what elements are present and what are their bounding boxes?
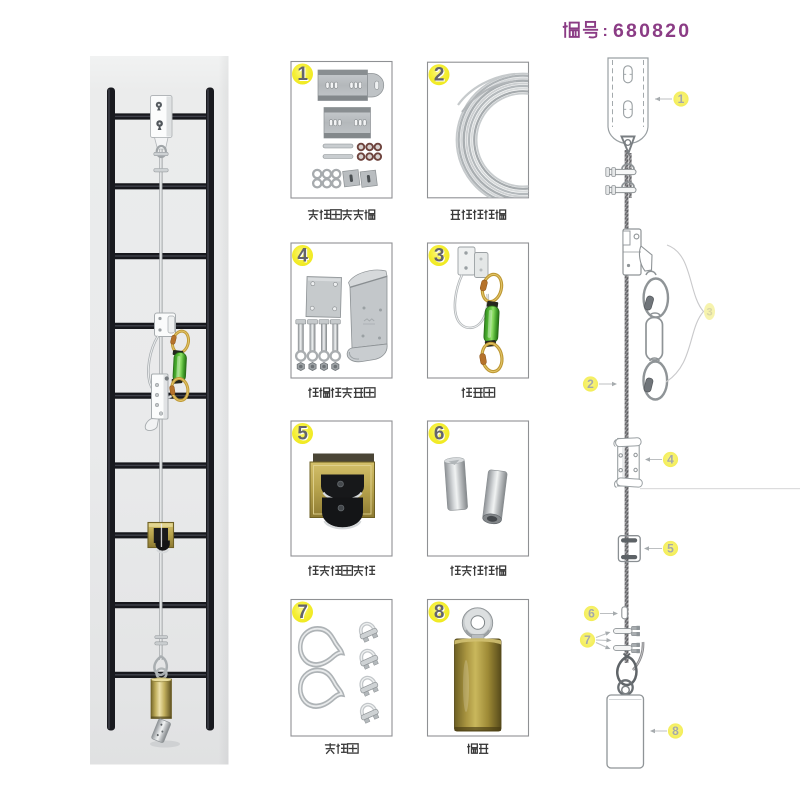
svg-text:3: 3 xyxy=(706,307,712,319)
svg-text:680820: 680820 xyxy=(613,20,691,42)
svg-text:1: 1 xyxy=(678,92,685,106)
svg-text::: : xyxy=(603,23,608,40)
svg-text:8: 8 xyxy=(434,602,445,623)
svg-text:7: 7 xyxy=(584,633,591,647)
svg-text:6: 6 xyxy=(434,423,445,444)
svg-text:4: 4 xyxy=(667,453,674,467)
svg-text:3: 3 xyxy=(434,245,445,266)
svg-text:5: 5 xyxy=(297,423,308,444)
svg-text:4: 4 xyxy=(297,245,308,266)
svg-text:2: 2 xyxy=(434,65,445,86)
svg-text:7: 7 xyxy=(297,602,308,623)
svg-text:5: 5 xyxy=(667,542,674,556)
svg-text:2: 2 xyxy=(587,377,594,391)
svg-text:1: 1 xyxy=(297,64,308,85)
svg-text:6: 6 xyxy=(588,607,595,621)
svg-text:8: 8 xyxy=(672,724,679,738)
